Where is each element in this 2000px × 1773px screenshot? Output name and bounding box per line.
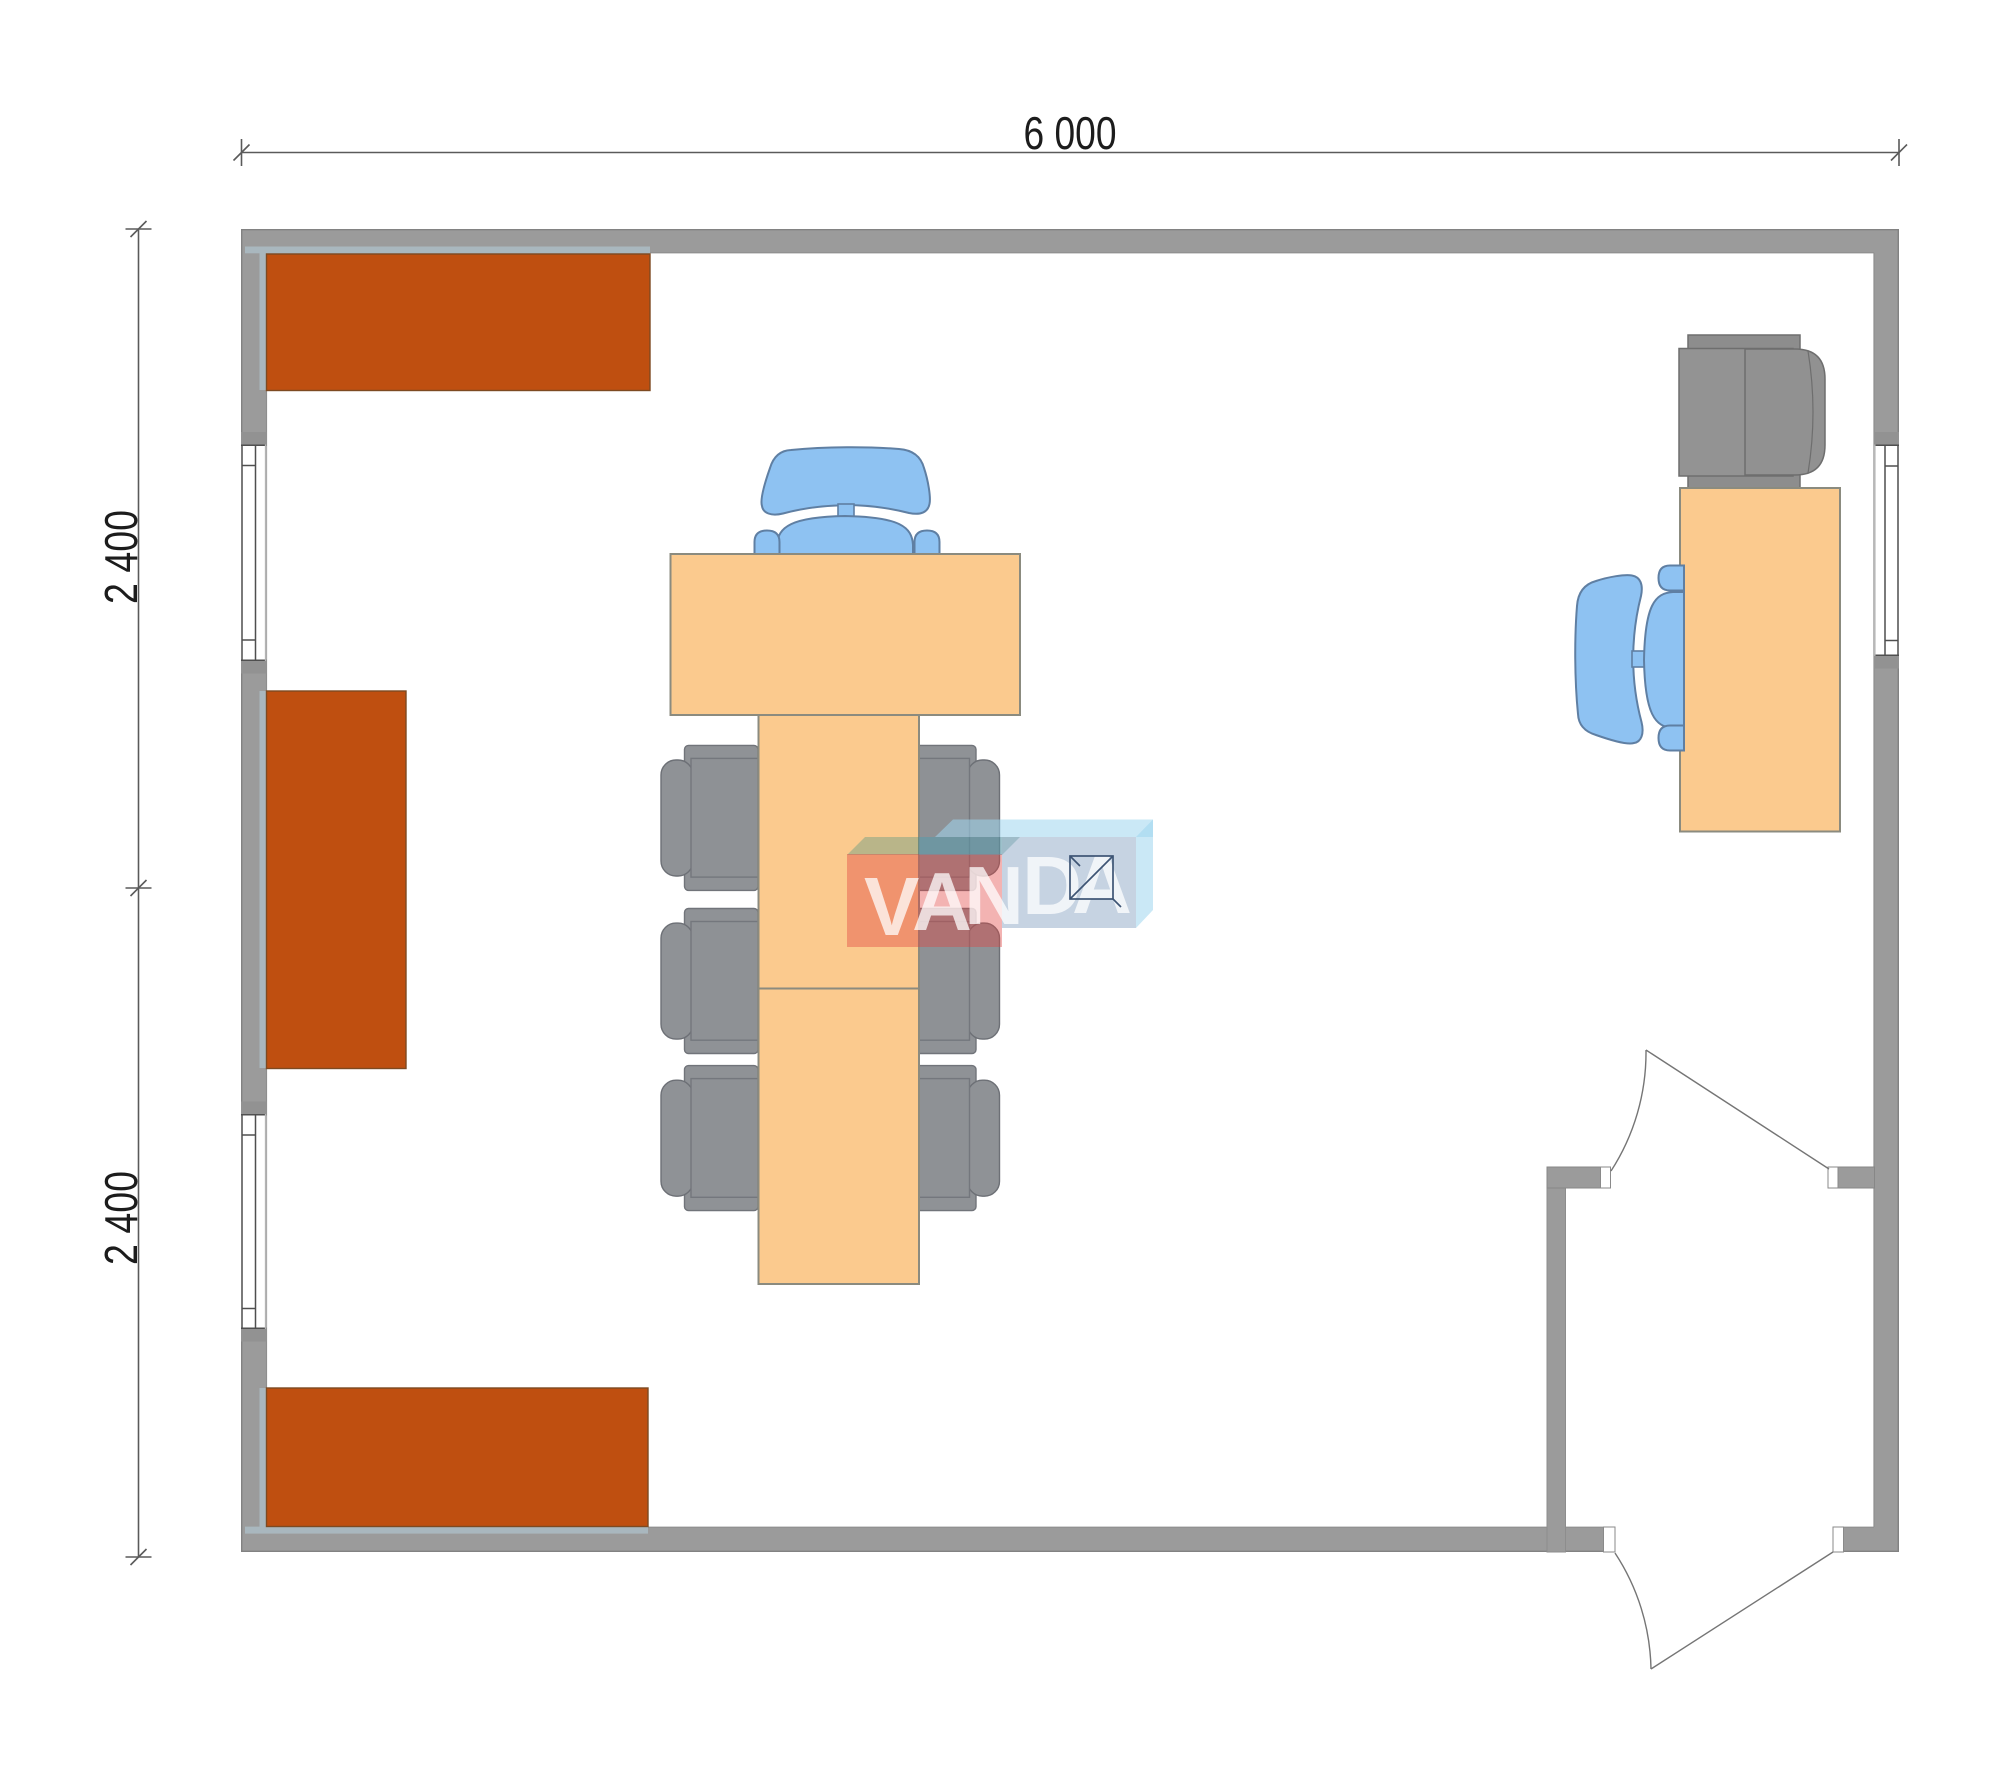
svg-text:6 000: 6 000 [1024, 107, 1117, 159]
svg-text:A: A [912, 855, 972, 948]
svg-text:2 400: 2 400 [95, 510, 147, 604]
svg-text:N: N [964, 849, 1024, 942]
svg-text:2 400: 2 400 [95, 1171, 147, 1265]
svg-text:A: A [1072, 838, 1132, 931]
